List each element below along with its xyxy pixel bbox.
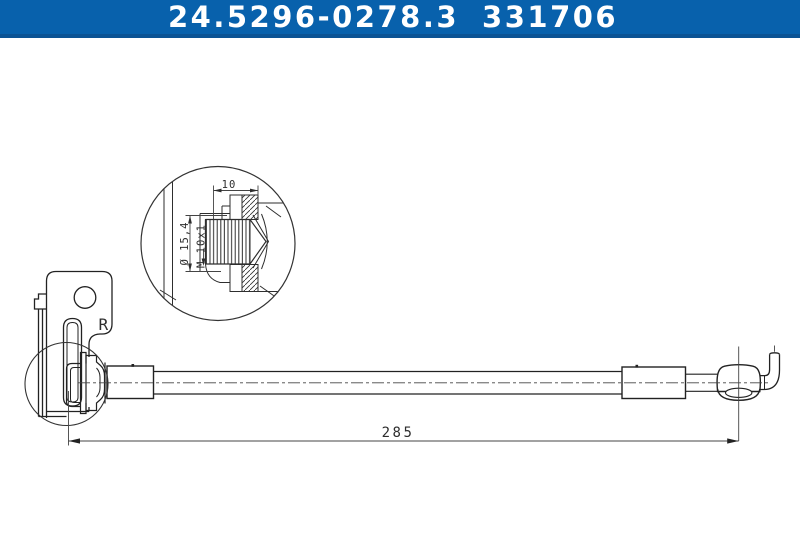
- dim10-arrow-right: [250, 189, 258, 193]
- mounting-bracket: [35, 272, 113, 419]
- detail-bracket-edges: [160, 166, 176, 321]
- detail-nut-bottom-hatch: [242, 265, 258, 292]
- thread-length-label: 10: [222, 179, 237, 191]
- flange-diameter-label: Ø 15,4: [179, 222, 191, 266]
- detail-thread-zone: [206, 220, 251, 265]
- hose-assembly: [107, 346, 780, 401]
- fitting-cup-inner: [71, 368, 81, 403]
- sleeve-mark-left: [132, 364, 135, 367]
- detail-nut-top-step: [222, 206, 230, 220]
- sleeve-mark-right: [636, 365, 639, 368]
- crimp-sleeve-left: [107, 366, 154, 399]
- mounting-slot-inner: [67, 323, 78, 403]
- overall-length-label: 285: [382, 425, 415, 441]
- technical-drawing: R: [0, 0, 800, 533]
- detail-view: 10 Ø 15,4 M 10x1: [141, 166, 295, 321]
- detail-nut-top-hatch: [242, 195, 258, 220]
- bracket-tab: [35, 294, 47, 309]
- brake-hose-drawing-page: 24.5296-0278.3 331706 R: [0, 0, 800, 533]
- elbow-top-cap: [770, 353, 780, 354]
- bracket-fold-edge: [39, 309, 43, 417]
- dim285-arrow-left: [69, 438, 81, 443]
- dim10-arrow-left: [214, 189, 222, 193]
- dim285-arrow-right: [727, 438, 739, 443]
- orientation-label: R: [99, 315, 109, 334]
- thread-spec-label: M 10x1: [196, 224, 208, 268]
- detail-cone-tip: [250, 220, 266, 265]
- mounting-hole: [74, 287, 96, 309]
- detail-fillet-curve: [206, 264, 231, 292]
